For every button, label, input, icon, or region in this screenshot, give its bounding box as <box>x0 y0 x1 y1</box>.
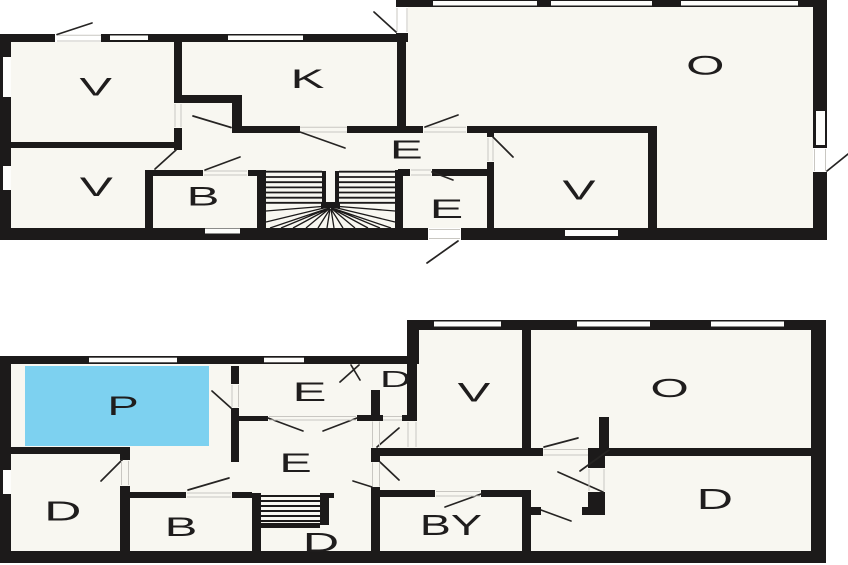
svg-text:V: V <box>80 173 114 202</box>
svg-text:B: B <box>187 182 220 212</box>
svg-text:V: V <box>79 73 112 101</box>
svg-text:BY: BY <box>420 510 482 542</box>
svg-text:E: E <box>390 136 423 165</box>
svg-text:V: V <box>458 377 491 407</box>
svg-text:B: B <box>165 512 198 542</box>
svg-text:E: E <box>279 449 311 478</box>
svg-text:O: O <box>650 374 688 403</box>
svg-text:D: D <box>380 367 411 392</box>
svg-text:D: D <box>697 483 733 515</box>
svg-text:D: D <box>303 527 339 558</box>
svg-text:O: O <box>686 50 724 80</box>
svg-text:V: V <box>562 175 595 205</box>
svg-text:D: D <box>44 496 81 527</box>
svg-text:P: P <box>107 391 138 421</box>
svg-text:E: E <box>293 377 327 407</box>
svg-text:E: E <box>430 195 463 224</box>
svg-text:K: K <box>291 64 325 94</box>
